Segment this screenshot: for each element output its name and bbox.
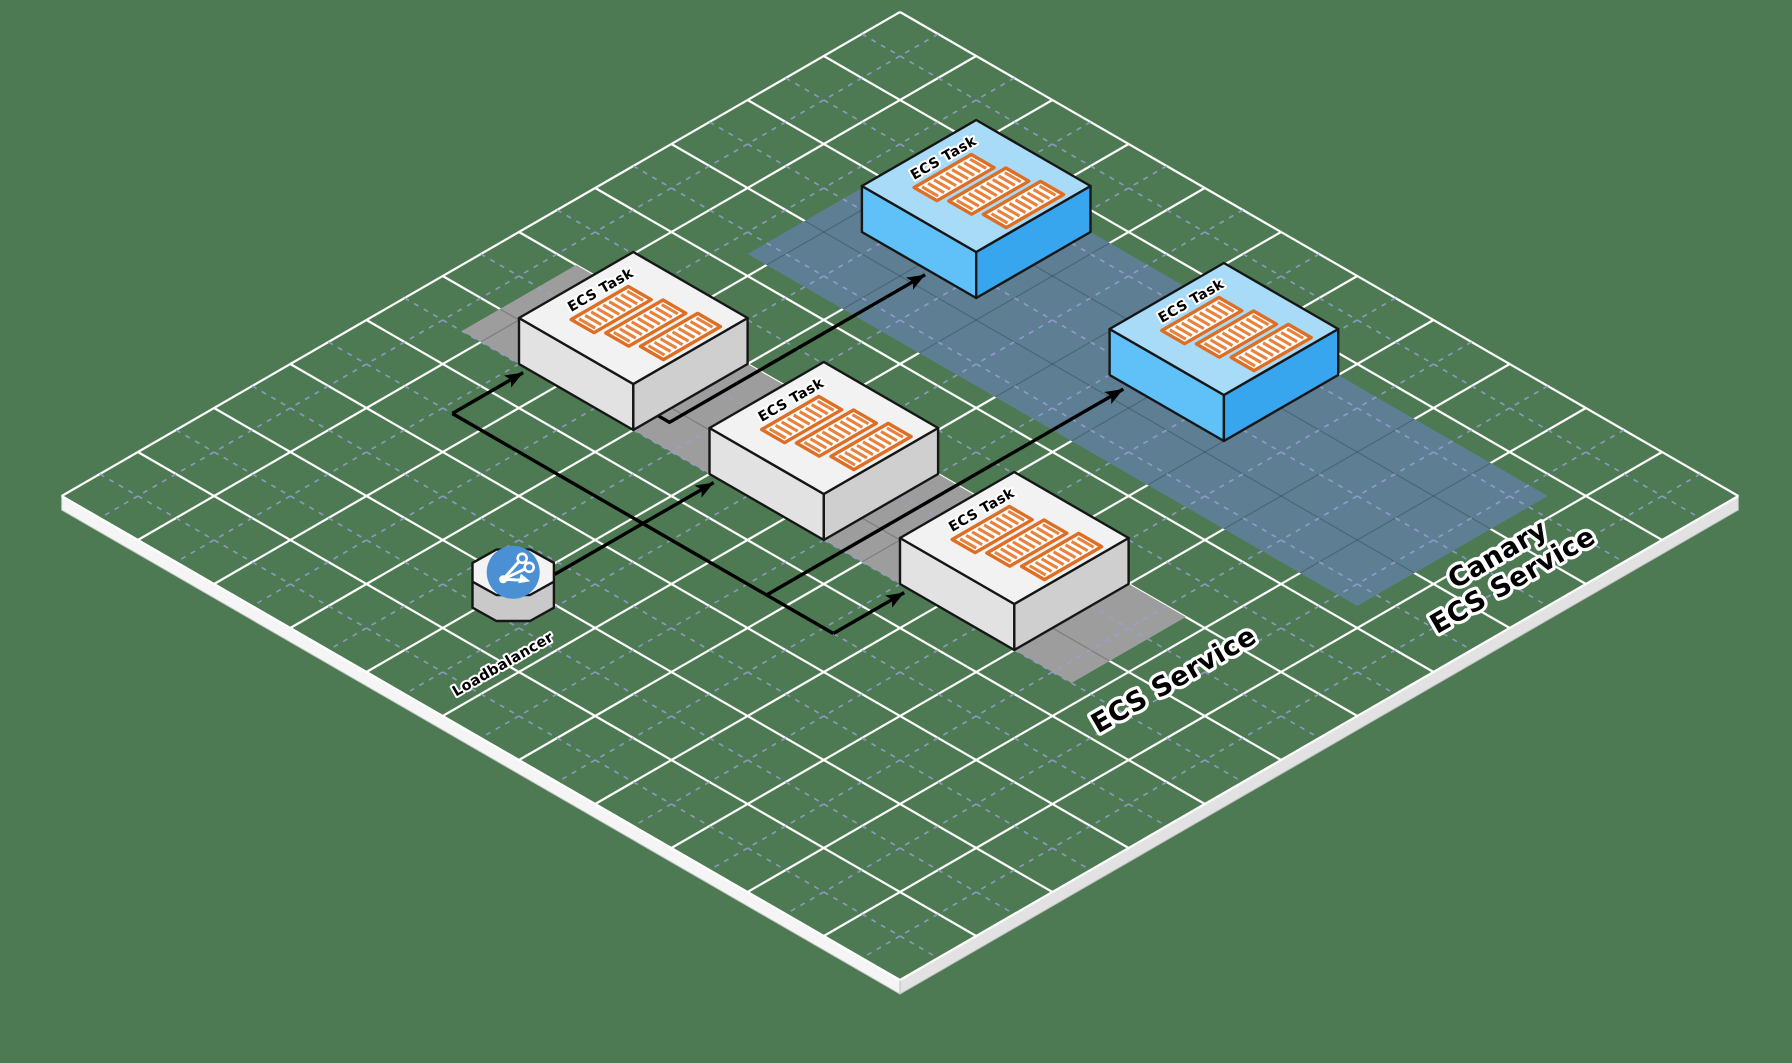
diagram-canvas: ECS TaskECS TaskECS TaskECS TaskECS Task… <box>0 0 1792 1063</box>
isometric-diagram: ECS TaskECS TaskECS TaskECS TaskECS Task… <box>0 0 1792 1063</box>
load-balancer-icon <box>487 546 540 599</box>
